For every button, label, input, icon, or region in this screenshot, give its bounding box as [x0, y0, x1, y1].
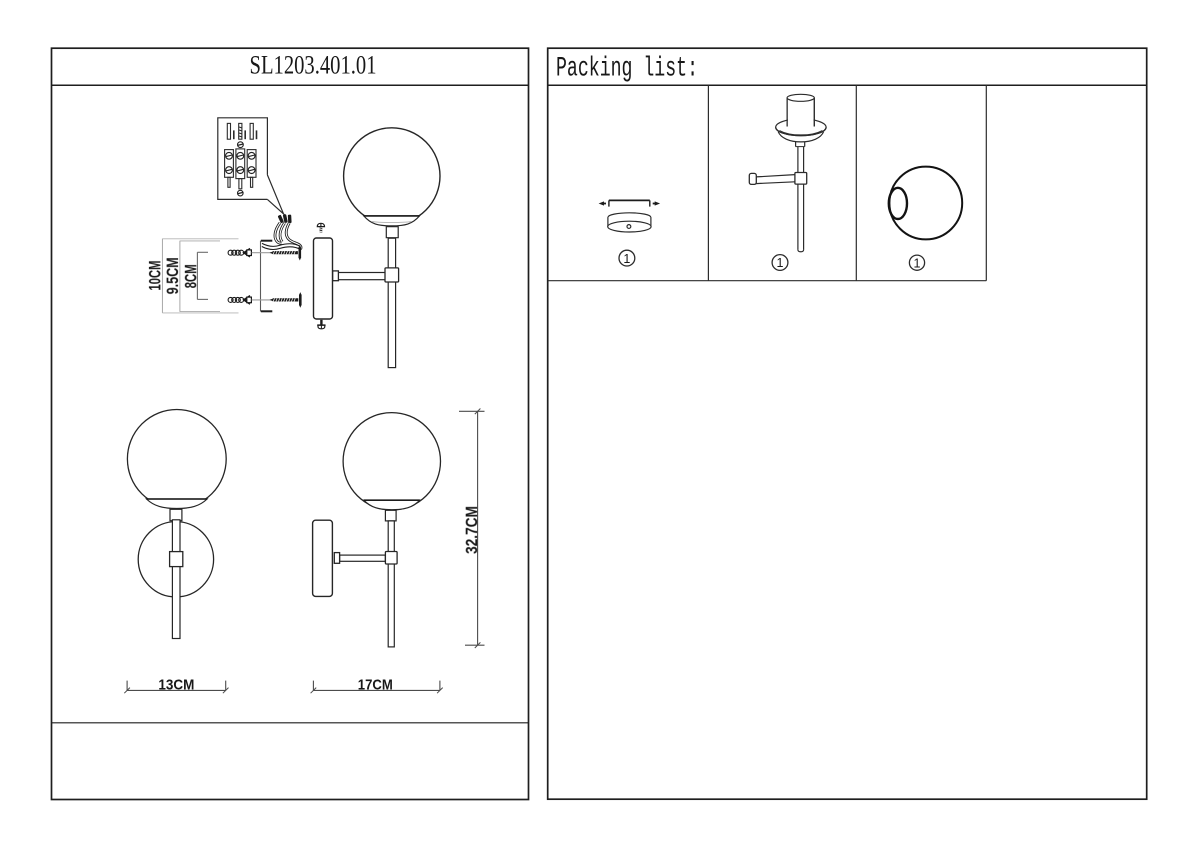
svg-text:1: 1 — [623, 252, 630, 266]
svg-text:17CM: 17CM — [358, 677, 393, 694]
svg-text:8CM: 8CM — [182, 264, 200, 288]
svg-text:SL1203.401.01: SL1203.401.01 — [250, 51, 377, 80]
svg-text:Packing list:: Packing list: — [556, 54, 698, 85]
svg-text:32.7CM: 32.7CM — [462, 506, 481, 554]
svg-text:10CM: 10CM — [147, 261, 165, 291]
svg-text:1: 1 — [777, 256, 784, 270]
svg-text:1: 1 — [914, 256, 921, 270]
svg-text:13CM: 13CM — [158, 677, 194, 694]
svg-text:9.5CM: 9.5CM — [164, 257, 182, 294]
